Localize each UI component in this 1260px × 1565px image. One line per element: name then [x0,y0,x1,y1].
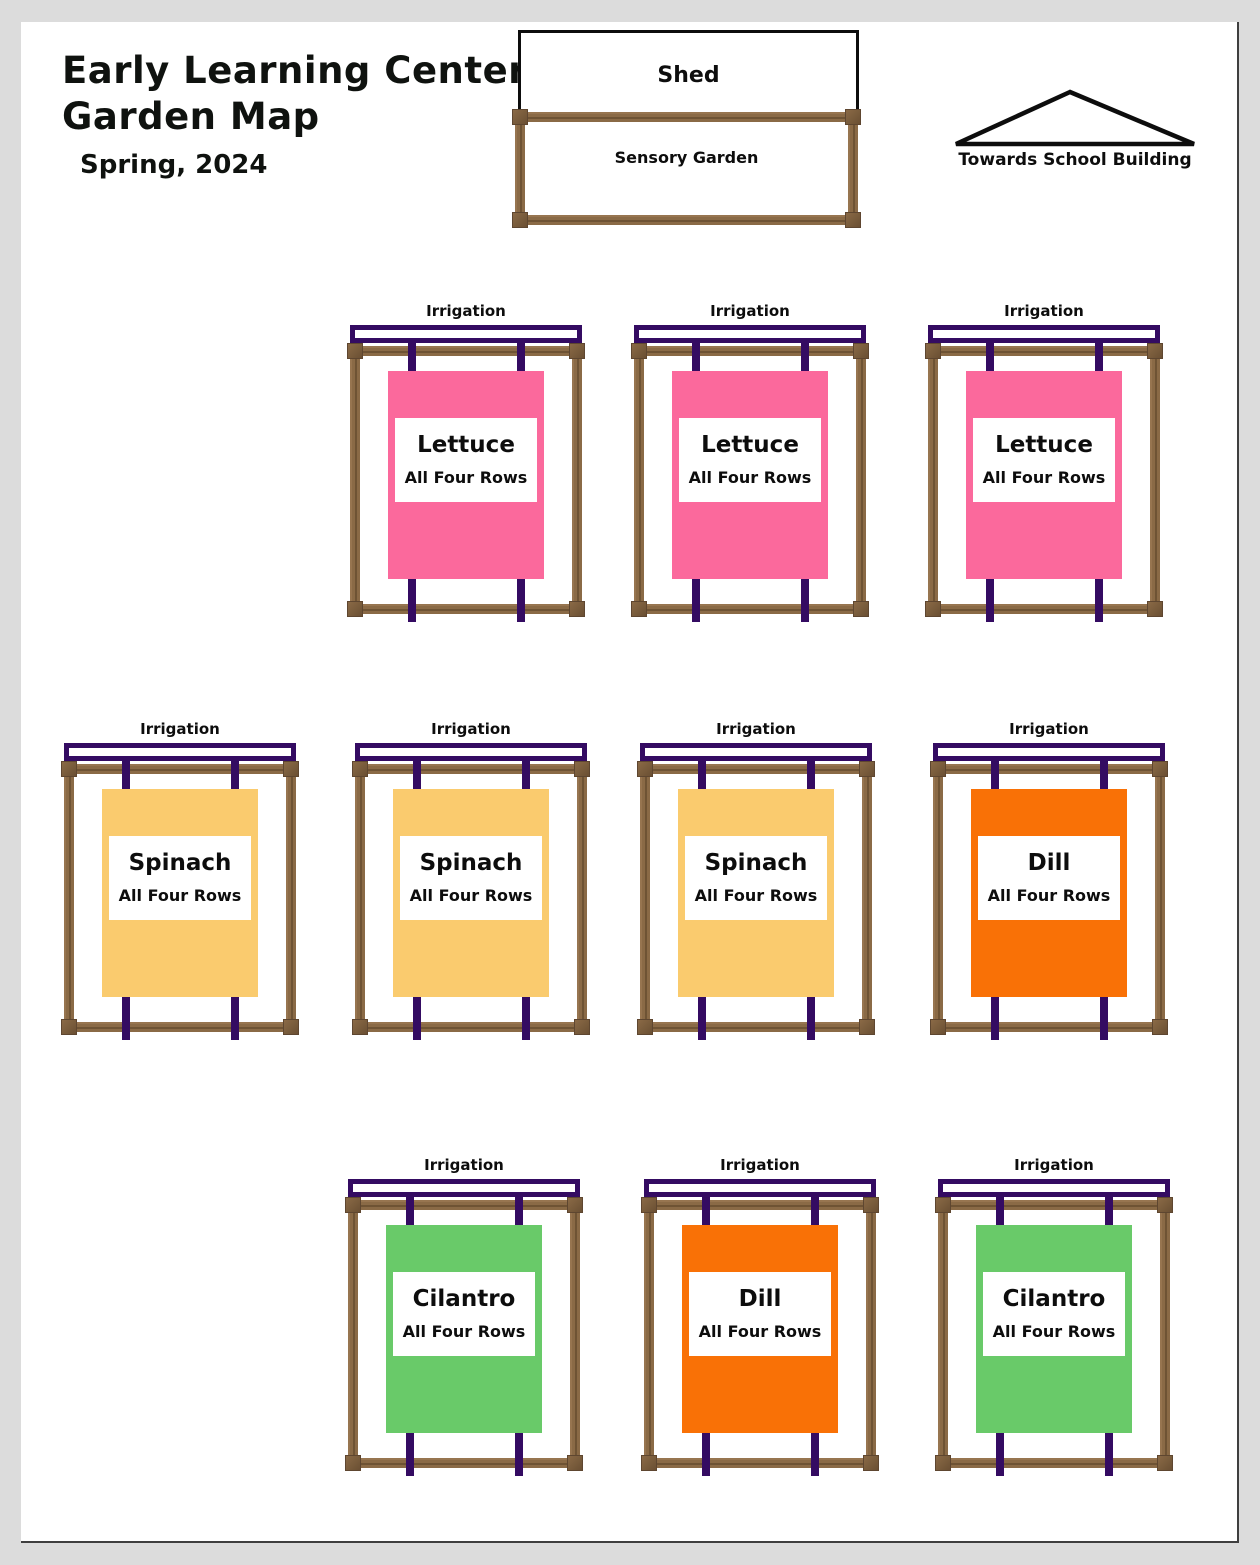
crop-name: Lettuce [701,433,799,458]
corner-post [574,761,590,777]
wood-rail [862,764,872,1032]
corner-post [569,601,585,617]
wood-rail [866,1200,876,1468]
wood-rail [640,1022,872,1032]
corner-post [1157,1455,1173,1471]
irrigation-pipe [348,1179,580,1197]
crop-label-card: Spinach All Four Rows [400,836,542,920]
irrigation-pipe [634,325,866,343]
wood-rail [64,764,296,774]
corner-post [935,1455,951,1471]
irrigation-label: Irrigation [634,302,866,322]
corner-post [863,1197,879,1213]
wood-rail [634,346,644,614]
wood-rail [933,1022,1165,1032]
garden-bed: Irrigation Dill All Four Rows [644,1156,876,1478]
crop-note: All Four Rows [988,886,1111,905]
corner-post [567,1455,583,1471]
corner-post [1157,1197,1173,1213]
wood-rail [348,1200,358,1468]
corner-post [930,1019,946,1035]
corner-post [641,1197,657,1213]
corner-post [859,1019,875,1035]
page-title-line1: Early Learning Center [62,48,527,94]
wood-rail [355,764,587,774]
corner-post [512,212,528,228]
irrigation-label: Irrigation [348,1156,580,1176]
wood-rail [1160,1200,1170,1468]
crop-name: Lettuce [995,433,1093,458]
crop-label-card: Lettuce All Four Rows [973,418,1115,502]
corner-post [930,761,946,777]
irrigation-label: Irrigation [64,720,296,740]
garden-bed: Irrigation Lettuce All Four Rows [350,302,582,624]
garden-bed: Irrigation Lettuce All Four Rows [928,302,1160,624]
crop-label-card: Lettuce All Four Rows [395,418,537,502]
crop-note: All Four Rows [699,1322,822,1341]
garden-bed: Irrigation Dill All Four Rows [933,720,1165,1042]
wood-rail [1150,346,1160,614]
corner-post [567,1197,583,1213]
wood-rail [350,346,360,614]
wood-rail [644,1200,654,1468]
corner-post [347,343,363,359]
crop-note: All Four Rows [689,468,812,487]
irrigation-pipe [928,325,1160,343]
garden-bed: Irrigation Lettuce All Four Rows [634,302,866,624]
corner-post [1152,1019,1168,1035]
wood-rail [928,604,1160,614]
irrigation-pipe [644,1179,876,1197]
wood-rail [64,1022,296,1032]
wood-rail [640,764,650,1032]
shed-box: Shed [518,30,859,121]
garden-bed: Irrigation Spinach All Four Rows [640,720,872,1042]
irrigation-label: Irrigation [640,720,872,740]
wood-rail [572,346,582,614]
corner-post [853,601,869,617]
page-subtitle: Spring, 2024 [80,150,267,180]
crop-name: Spinach [129,851,232,876]
crop-name: Dill [1028,851,1071,876]
corner-post [512,109,528,125]
corner-post [631,343,647,359]
wood-rail [644,1458,876,1468]
wood-rail [848,112,858,225]
corner-post [641,1455,657,1471]
wood-rail [938,1458,1170,1468]
wood-rail [933,764,943,1032]
direction-label: Towards School Building [950,150,1200,170]
corner-post [863,1455,879,1471]
crop-label-card: Spinach All Four Rows [685,836,827,920]
corner-post [1147,601,1163,617]
wood-rail [928,346,938,614]
irrigation-pipe [640,743,872,761]
wood-rail [348,1200,580,1210]
corner-post [1147,343,1163,359]
wood-rail [634,604,866,614]
crop-label-card: Dill All Four Rows [689,1272,831,1356]
crop-name: Spinach [705,851,808,876]
irrigation-pipe [64,743,296,761]
corner-post [352,1019,368,1035]
crop-note: All Four Rows [119,886,242,905]
irrigation-label: Irrigation [355,720,587,740]
wood-rail [350,346,582,356]
wood-rail [1155,764,1165,1032]
crop-note: All Four Rows [695,886,818,905]
corner-post [345,1197,361,1213]
irrigation-pipe [355,743,587,761]
corner-post [845,109,861,125]
page-title-line2: Garden Map [62,94,527,140]
garden-bed: Irrigation Spinach All Four Rows [64,720,296,1042]
crop-note: All Four Rows [405,468,528,487]
garden-bed: Irrigation Cilantro All Four Rows [938,1156,1170,1478]
crop-label-card: Dill All Four Rows [978,836,1120,920]
sensory-garden-bed: Sensory Garden [515,112,858,225]
irrigation-pipe [350,325,582,343]
corner-post [845,212,861,228]
irrigation-label: Irrigation [933,720,1165,740]
corner-post [1152,761,1168,777]
corner-post [347,601,363,617]
wood-rail [348,1458,580,1468]
irrigation-pipe [938,1179,1170,1197]
crop-label-card: Spinach All Four Rows [109,836,251,920]
garden-map-page: Early Learning Center Garden Map Spring,… [21,22,1239,1543]
corner-post [569,343,585,359]
corner-post [637,1019,653,1035]
irrigation-label: Irrigation [938,1156,1170,1176]
wood-rail [938,1200,948,1468]
crop-note: All Four Rows [993,1322,1116,1341]
wood-rail [933,764,1165,774]
wood-rail [928,346,1160,356]
corner-post [61,761,77,777]
crop-name: Cilantro [1003,1287,1106,1312]
crop-note: All Four Rows [410,886,533,905]
corner-post [574,1019,590,1035]
corner-post [935,1197,951,1213]
direction-triangle-icon [950,86,1200,150]
wood-rail [350,604,582,614]
corner-post [853,343,869,359]
irrigation-label: Irrigation [928,302,1160,322]
wood-rail [286,764,296,1032]
crop-note: All Four Rows [983,468,1106,487]
crop-name: Cilantro [413,1287,516,1312]
crop-label-card: Cilantro All Four Rows [393,1272,535,1356]
garden-bed: Irrigation Cilantro All Four Rows [348,1156,580,1478]
corner-post [283,1019,299,1035]
wood-rail [515,112,858,122]
wood-rail [577,764,587,1032]
corner-post [925,601,941,617]
wood-rail [856,346,866,614]
wood-rail [355,1022,587,1032]
crop-label-card: Cilantro All Four Rows [983,1272,1125,1356]
page-title: Early Learning Center Garden Map [62,48,527,140]
wood-rail [355,764,365,1032]
crop-name: Spinach [420,851,523,876]
wood-rail [570,1200,580,1468]
corner-post [631,601,647,617]
corner-post [345,1455,361,1471]
corner-post [352,761,368,777]
crop-label-card: Lettuce All Four Rows [679,418,821,502]
wood-rail [938,1200,1170,1210]
corner-post [637,761,653,777]
wood-rail [644,1200,876,1210]
corner-post [283,761,299,777]
crop-name: Dill [739,1287,782,1312]
irrigation-pipe [933,743,1165,761]
corner-post [61,1019,77,1035]
wood-rail [64,764,74,1032]
shed-label: Shed [657,63,719,88]
irrigation-label: Irrigation [350,302,582,322]
corner-post [859,761,875,777]
garden-bed: Irrigation Spinach All Four Rows [355,720,587,1042]
corner-post [925,343,941,359]
crop-name: Lettuce [417,433,515,458]
wood-rail [634,346,866,356]
sensory-garden-label: Sensory Garden [515,148,858,167]
wood-rail [640,764,872,774]
wood-rail [515,112,525,225]
crop-note: All Four Rows [403,1322,526,1341]
irrigation-label: Irrigation [644,1156,876,1176]
wood-rail [515,215,858,225]
